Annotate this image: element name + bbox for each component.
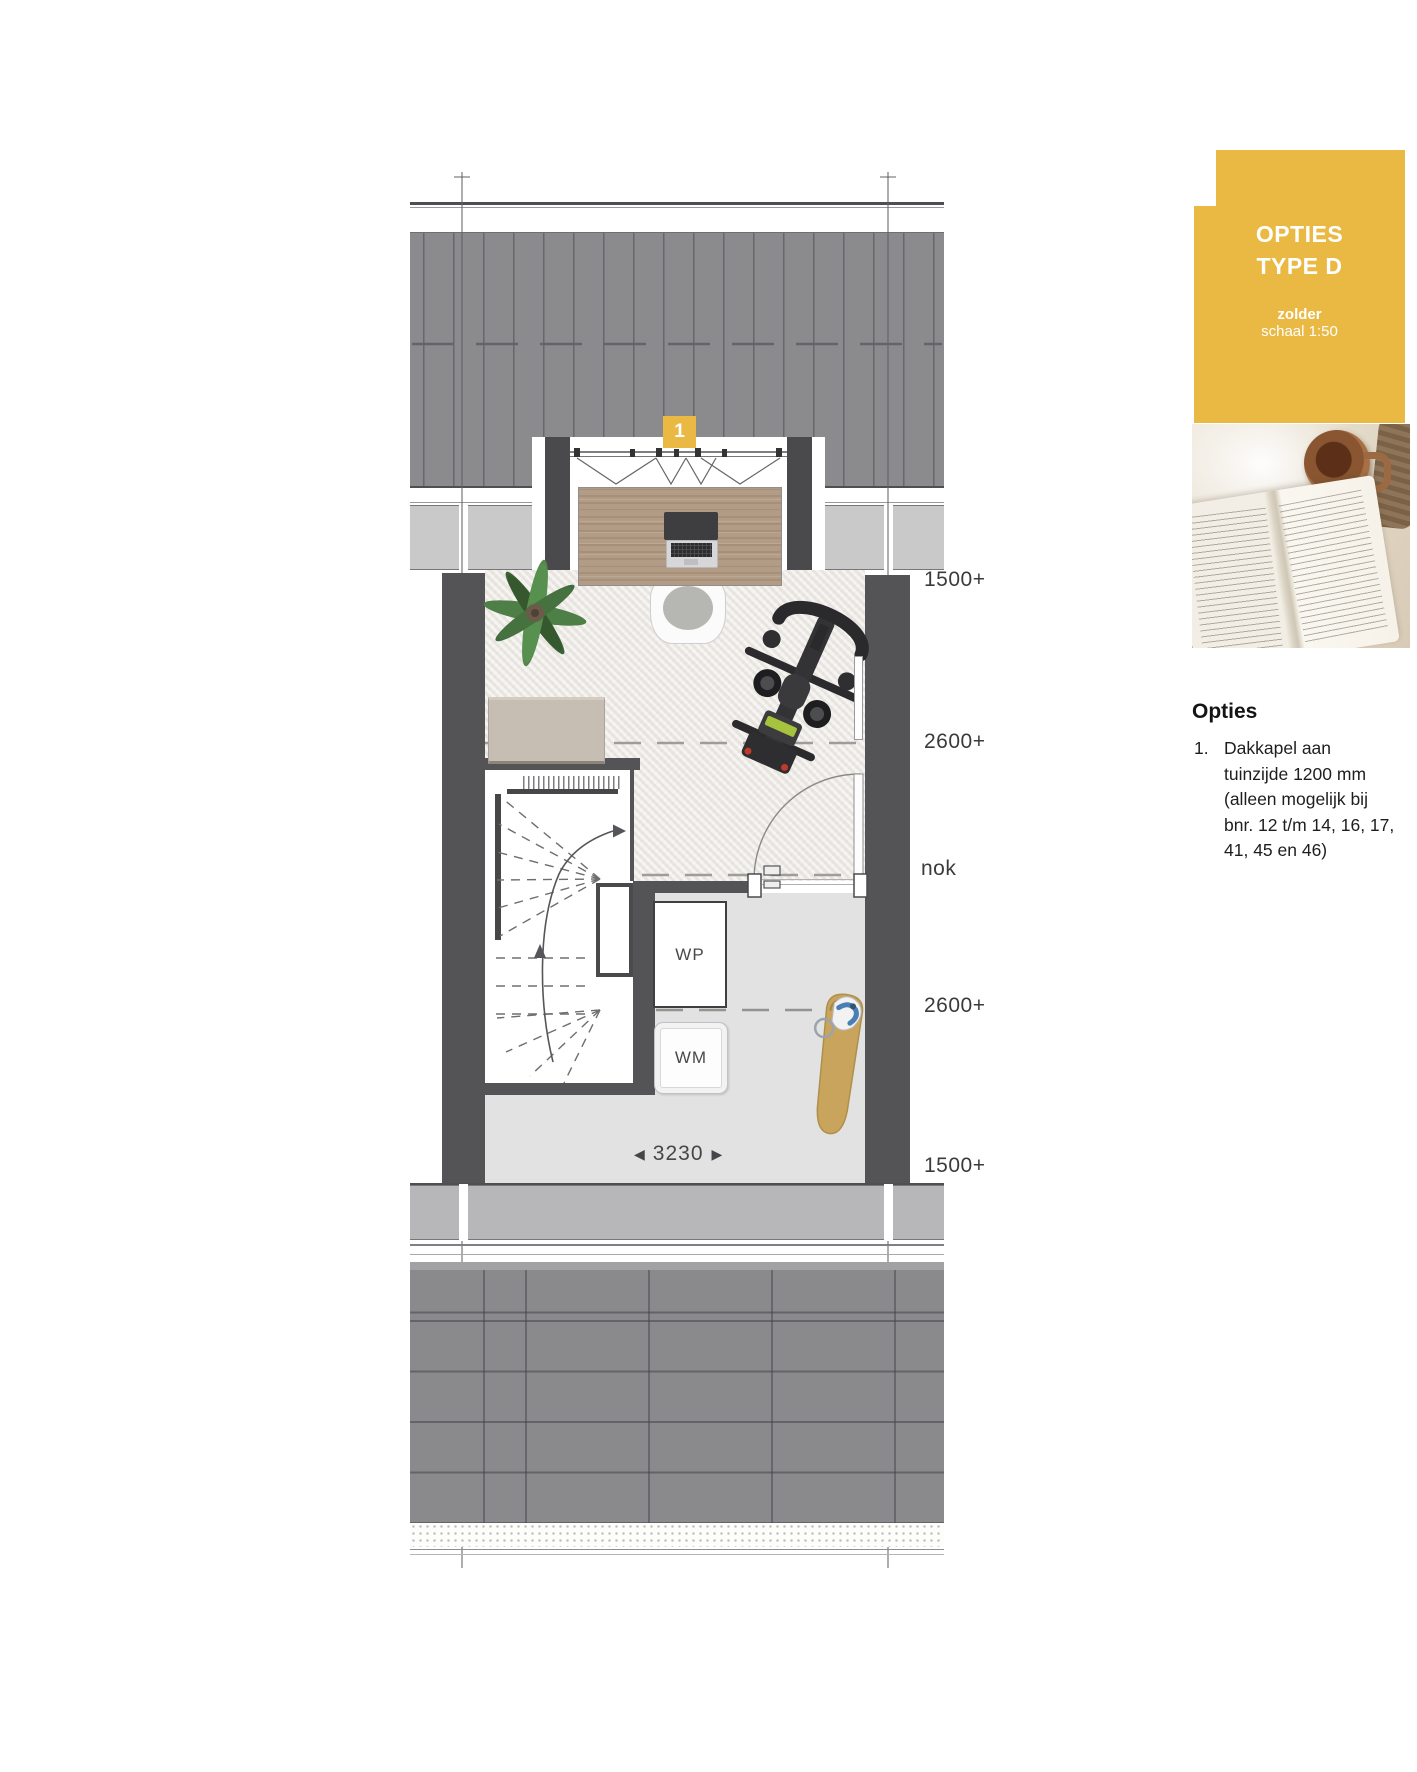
type-badge-tab [1216,150,1405,206]
type-badge-text: OPTIES TYPE D zolder schaal 1:50 [1194,218,1405,340]
laundry-floor-lower [482,1095,865,1183]
height-label-2600-lower: 2600+ [924,994,985,1018]
laptop-keyboard [671,543,712,557]
height-label-2600-upper: 2600+ [924,730,985,754]
wall-right [865,575,910,1183]
party-gap-bottom-left [459,1184,468,1241]
badge-subtitle-floor: zolder [1194,306,1405,323]
dormer-flank-left [532,437,545,570]
wall-room-bottom [633,881,754,893]
options-item-text: Dakkapel aan tuinzijde 1200 mm (alleen m… [1224,736,1394,864]
stair-baluster [495,794,501,940]
bench-mat [488,697,605,764]
gravel-strip [410,1523,944,1547]
eave-top-line2-right [825,502,944,503]
laptop-lid [664,512,718,540]
eave-top-line-left [410,486,532,488]
photo-open-book [1192,475,1400,648]
stair-void-box [596,883,633,977]
eave-band-bottom [410,1185,944,1240]
badge-subtitle-scale: schaal 1:50 [1194,323,1405,340]
party-gap-top-left [459,504,468,571]
party-gap-top-right [884,504,893,571]
wall-stair-right-thin [630,770,634,881]
stair-top-hatch [523,776,623,789]
desk-chair [650,578,726,644]
option-marker-1: 1 [663,416,696,448]
roof-bottom-tiles [410,1262,944,1525]
height-label-1500-top: 1500+ [924,568,985,592]
height-label-1500-bottom: 1500+ [924,1154,985,1178]
roof-bottom-edge-strip [410,1262,944,1270]
heatpump-unit: WP [653,901,727,1008]
eave-band-top-left [410,505,532,570]
eave-bottom-line2 [410,1254,944,1255]
eave-bottom-line1 [410,1244,944,1246]
laptop-trackpad [684,559,698,565]
dormer-flank-right [812,437,825,570]
wm-label: WM [675,1048,707,1068]
wp-label: WP [675,945,704,965]
badge-title-line2: TYPE D [1194,250,1405,282]
dormer-cheek-right [787,437,812,570]
bottom-line1 [410,1549,944,1550]
dimension-3230: ◀ 3230 ▶ [634,1142,722,1166]
party-gap-bottom-right [884,1184,893,1241]
eave-top-line-right [825,486,944,488]
chair-cushion [663,586,713,630]
wall-stair-bottom [482,1083,655,1095]
wall-left [442,573,485,1183]
top-outline-thick [410,202,944,205]
brochure-page: 1 [0,0,1417,1772]
dimension-arrow-right-icon: ▶ [712,1146,723,1163]
washing-machine: WM [654,1022,728,1094]
options-item-1: 1. Dakkapel aan tuinzijde 1200 mm (allee… [1194,736,1406,864]
eave-top-line2-left [410,502,532,503]
bottom-line2 [410,1554,944,1555]
dormer-cheek-left [545,437,570,570]
wall-door-stub [860,881,865,893]
options-heading: Opties [1192,700,1257,724]
stair-edge-bar [507,789,618,794]
wall-stair-laundry [633,881,655,1095]
top-outline-thin [410,207,944,208]
wall-niche [854,656,863,740]
options-item-number: 1. [1194,736,1224,864]
height-label-nok: nok [921,857,956,881]
badge-title-line1: OPTIES [1194,218,1405,250]
dimension-value: 3230 [653,1142,704,1166]
dimension-arrow-left-icon: ◀ [634,1146,645,1163]
photo-book-coffee [1192,424,1410,648]
